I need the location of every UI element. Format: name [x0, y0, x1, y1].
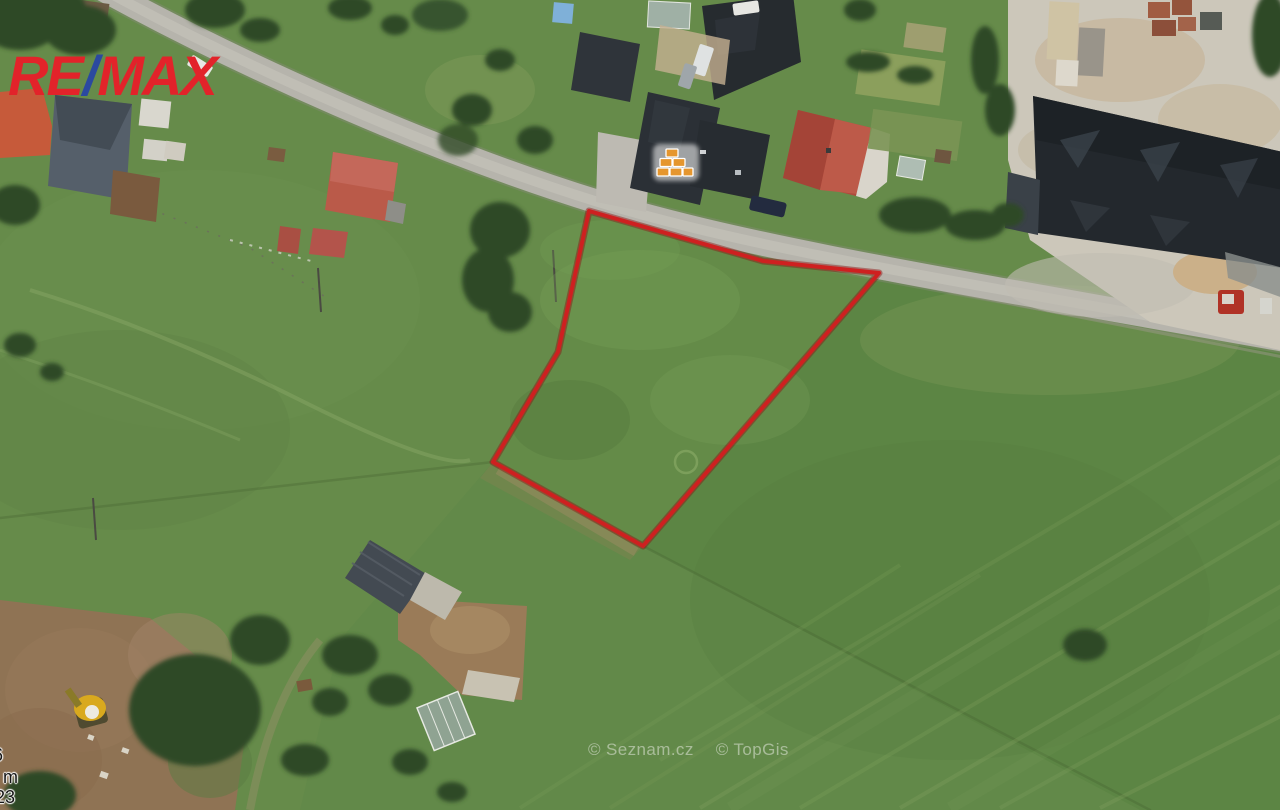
greenhouse: [647, 1, 690, 29]
hedge: [971, 26, 999, 94]
red-shed: [277, 226, 301, 254]
hedge: [992, 203, 1024, 227]
measure-label-fragment: 23: [0, 787, 15, 808]
brick-icon: [660, 159, 672, 167]
remax-aerial-listing-image: RE/MAX © Seznam.cz © TopGis 6 m 23: [0, 0, 1280, 810]
blue-tarp: [552, 2, 574, 24]
measure-label-fragment: 6: [0, 745, 3, 766]
tree: [488, 292, 532, 332]
roof-window: [700, 150, 706, 154]
grass-patch: [510, 380, 630, 460]
tree: [129, 654, 261, 766]
bush: [281, 744, 329, 776]
bush: [4, 333, 36, 357]
tree: [312, 688, 348, 716]
tree: [381, 15, 409, 35]
field-tone: [690, 440, 1210, 760]
red-shed: [309, 228, 348, 258]
tree: [985, 84, 1015, 136]
remax-logo-max: MAX: [97, 44, 215, 107]
tree: [322, 635, 378, 675]
measure-label-fragment: m: [3, 767, 18, 788]
hedge: [879, 197, 951, 233]
storage-shed: [1055, 59, 1078, 86]
vehicle-cab: [1222, 294, 1234, 304]
map-attribution: © Seznam.cz © TopGis: [588, 740, 789, 760]
tree: [368, 674, 412, 706]
tree: [844, 0, 876, 21]
hedge: [846, 52, 890, 72]
brick-pallet: [1178, 17, 1196, 31]
bush: [40, 363, 64, 381]
attribution-seznam[interactable]: © Seznam.cz: [588, 740, 694, 760]
greenhouse: [896, 156, 925, 180]
bush: [392, 749, 428, 775]
brick-icon: [666, 149, 678, 157]
tree: [470, 202, 530, 258]
white-crate: [1260, 298, 1272, 314]
storage-shed: [1077, 27, 1105, 76]
dark-roof-outbuilding: [571, 32, 640, 102]
garden-hut: [164, 141, 186, 162]
tree: [438, 124, 478, 156]
brick-pallet: [1148, 2, 1170, 18]
wood-deck: [110, 170, 160, 222]
brick-icon: [673, 159, 685, 167]
bricks-marker[interactable]: [653, 144, 699, 181]
aerial-photo: [0, 0, 1280, 810]
garden-hut: [267, 147, 286, 162]
brick-icon: [683, 168, 693, 176]
brick-icon: [670, 168, 682, 176]
hedge: [897, 66, 933, 84]
attribution-topgis[interactable]: © TopGis: [716, 740, 789, 760]
garden-hut: [934, 149, 952, 164]
tree: [485, 49, 515, 71]
tree: [517, 126, 553, 154]
gravel-patch: [1005, 253, 1195, 317]
bush: [1063, 629, 1107, 661]
remax-logo-re: RE: [8, 44, 82, 107]
tree: [240, 18, 280, 42]
chimney: [826, 148, 831, 153]
barn-annex: [385, 200, 406, 224]
roof-window: [735, 170, 741, 175]
tree: [452, 94, 492, 126]
tree: [412, 0, 468, 31]
bush: [437, 782, 467, 802]
brick-icon: [657, 168, 669, 176]
tree: [230, 615, 290, 665]
grass-patch: [650, 355, 810, 445]
remax-logo-slash: /: [82, 44, 98, 107]
remax-logo: RE/MAX: [8, 48, 216, 104]
storage-shed: [1047, 1, 1080, 60]
brick-pallet: [1172, 0, 1192, 15]
pallet: [1200, 12, 1222, 30]
brick-pallet: [1152, 20, 1176, 36]
